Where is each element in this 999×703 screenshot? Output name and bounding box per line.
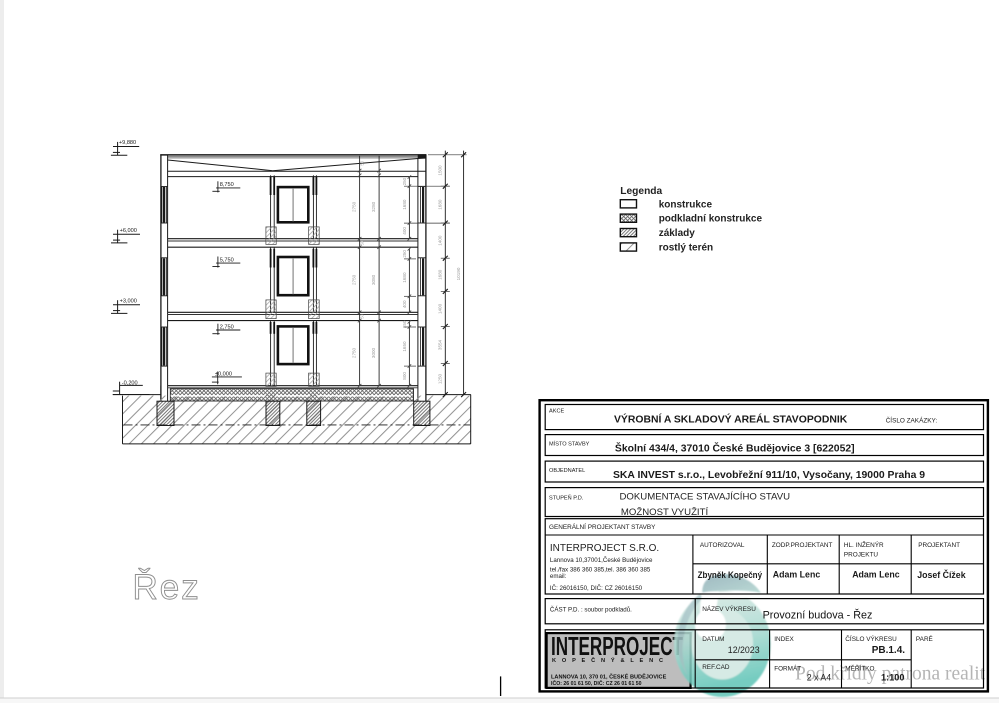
svg-text:1680: 1680 [402, 272, 407, 283]
svg-text:NÁZEV VÝKRESU: NÁZEV VÝKRESU [702, 604, 756, 613]
svg-text:LANNOVA 10, 370 01, ČESKÉ BU: LANNOVA 10, 370 01, ČESKÉ BUDĚJOVICE [551, 672, 667, 680]
svg-text:Josef Čížek: Josef Čížek [917, 569, 966, 580]
svg-text:3080: 3080 [371, 274, 376, 285]
svg-text:K O P E Č N Ý & L E N C: K O P E Č N Ý & L E N C [552, 657, 663, 664]
svg-text:Zbyněk Kopečný: Zbyněk Kopečný [698, 570, 763, 580]
svg-text:+6,000: +6,000 [120, 228, 137, 234]
svg-text:+9,880: +9,880 [119, 140, 136, 146]
svg-text:5,750: 5,750 [220, 257, 234, 263]
svg-text:400: 400 [402, 227, 407, 235]
svg-text:50: 50 [360, 160, 365, 165]
svg-text:1400: 1400 [438, 235, 443, 246]
svg-text:1:100: 1:100 [881, 673, 905, 683]
svg-text:2750: 2750 [351, 274, 356, 285]
svg-text:MOŽNOST VYUŽITÍ: MOŽNOST VYUŽITÍ [621, 507, 709, 518]
svg-text:8,750: 8,750 [220, 182, 234, 188]
svg-text:2750: 2750 [351, 347, 356, 358]
svg-text:+3,000: +3,000 [120, 299, 137, 305]
svg-text:STUPEŇ P.D.: STUPEŇ P.D. [549, 495, 584, 502]
svg-text:ČÁST P.D. : soubor podkladů.: ČÁST P.D. : soubor podkladů. [550, 607, 632, 614]
svg-text:2,750: 2,750 [220, 324, 234, 330]
svg-text:PARÉ: PARÉ [916, 634, 933, 643]
svg-text:INTERPROJECT S.R.O.: INTERPROJECT S.R.O. [550, 543, 659, 554]
svg-text:1680: 1680 [438, 269, 443, 280]
svg-text:REF.CAD: REF.CAD [702, 664, 730, 671]
svg-text:3280: 3280 [371, 201, 376, 212]
svg-text:ČÍSLO ZAKÁZKY:: ČÍSLO ZAKÁZKY: [886, 416, 938, 425]
svg-text:GENERÁLNÍ PROJEKTANT STAVBY: GENERÁLNÍ PROJEKTANT STAVBY [549, 522, 656, 531]
svg-text:PROJEKTANT: PROJEKTANT [918, 542, 960, 549]
svg-text:IČO: 26 01 61 50, DIČ:: IČO: 26 01 61 50, DIČ: CZ 26 01 61 50 [551, 680, 642, 687]
svg-text:email:: email: [550, 573, 567, 580]
svg-text:3554: 3554 [438, 339, 443, 350]
svg-text:AUTORIZOVAL: AUTORIZOVAL [700, 542, 745, 549]
svg-text:1650: 1650 [402, 341, 407, 352]
svg-text:Adam Lenc: Adam Lenc [852, 569, 900, 579]
svg-text:1400: 1400 [438, 303, 443, 314]
svg-text:IČ: 26016150, DIČ: CZ 26016150: IČ: 26016150, DIČ: CZ 26016150 [550, 585, 643, 592]
svg-text:400: 400 [402, 300, 407, 308]
svg-text:konstrukce: konstrukce [659, 199, 713, 210]
svg-text:250: 250 [402, 320, 407, 328]
svg-text:12/2023: 12/2023 [728, 645, 760, 655]
svg-text:podkladní konstrukce: podkladní konstrukce [659, 214, 763, 225]
svg-text:INDEX: INDEX [774, 636, 794, 643]
svg-text:1680: 1680 [402, 199, 407, 210]
svg-text:250: 250 [402, 250, 407, 258]
svg-text:Lannova 10,37001,České Budějov: Lannova 10,37001,České Budějovice [550, 557, 653, 564]
svg-text:1680: 1680 [438, 199, 443, 210]
svg-text:1250: 1250 [438, 374, 443, 385]
svg-text:50: 50 [360, 240, 365, 245]
svg-text:250: 250 [402, 177, 407, 185]
svg-text:DATUM: DATUM [702, 636, 724, 643]
svg-text:PROJEKTU: PROJEKTU [844, 551, 878, 558]
svg-text:10190: 10190 [456, 267, 461, 280]
svg-text:ZODP.PROJEKTANT: ZODP.PROJEKTANT [772, 542, 833, 549]
svg-text:2750: 2750 [351, 201, 356, 212]
svg-text:FORMÁT: FORMÁT [774, 664, 801, 673]
svg-text:rostlý terén: rostlý terén [659, 243, 713, 254]
svg-text:HL. INŽENÝR: HL. INŽENÝR [844, 540, 884, 549]
svg-text:MÍSTO STAVBY: MÍSTO STAVBY [549, 441, 590, 448]
svg-text:MĚŘÍTKO: MĚŘÍTKO [845, 664, 874, 673]
svg-text:Legenda: Legenda [620, 186, 662, 197]
svg-text:2 x A4: 2 x A4 [807, 673, 832, 683]
svg-text:ČÍSLO VÝKRESU: ČÍSLO VÝKRESU [845, 634, 897, 643]
svg-text:DOKUMENTACE STAVAJÍCÍHO STAVU: DOKUMENTACE STAVAJÍCÍHO STAVU [620, 492, 791, 503]
svg-text:Adam Lenc: Adam Lenc [773, 569, 821, 579]
svg-text:Provozní budova - Řez: Provozní budova - Řez [763, 608, 873, 621]
svg-text:OBJEDNATEL: OBJEDNATEL [549, 468, 585, 474]
svg-text:AKCE: AKCE [549, 409, 565, 415]
svg-text:3000: 3000 [371, 347, 376, 358]
svg-text:Školní 434/4, 37010 České Budě: Školní 434/4, 37010 České Budějovice 3 [… [615, 441, 855, 454]
svg-text:SKA INVEST s.r.o., Levobřežní: SKA INVEST s.r.o., Levobřežní 911/10, Vy… [613, 470, 925, 481]
svg-text:Řez: Řez [133, 568, 201, 607]
svg-text:VÝROBNÍ A SKLADOVÝ AREÁL STAVO: VÝROBNÍ A SKLADOVÝ AREÁL STAVOPODNIK [614, 413, 848, 426]
svg-text:PB.1.4.: PB.1.4. [872, 645, 906, 656]
svg-text:800: 800 [402, 372, 407, 380]
svg-text:50: 50 [360, 313, 365, 318]
svg-text:základy: základy [659, 228, 696, 239]
svg-text:1500: 1500 [438, 165, 443, 176]
svg-text:INTERPROJECT: INTERPROJECT [551, 631, 683, 661]
